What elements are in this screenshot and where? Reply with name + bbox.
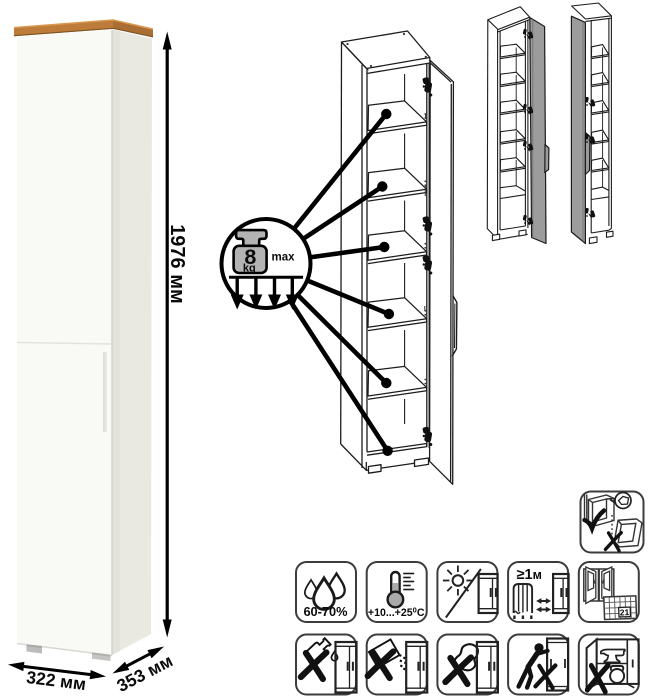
svg-text:+10...+250C: +10...+250C <box>368 606 425 620</box>
svg-text:kg: kg <box>243 262 256 274</box>
svg-text:21: 21 <box>620 607 630 617</box>
svg-text:≥1м: ≥1м <box>517 567 542 583</box>
svg-text:1976 мм: 1976 мм <box>166 224 188 304</box>
svg-text:max: max <box>272 252 296 264</box>
svg-text:60-70%: 60-70% <box>303 604 348 619</box>
